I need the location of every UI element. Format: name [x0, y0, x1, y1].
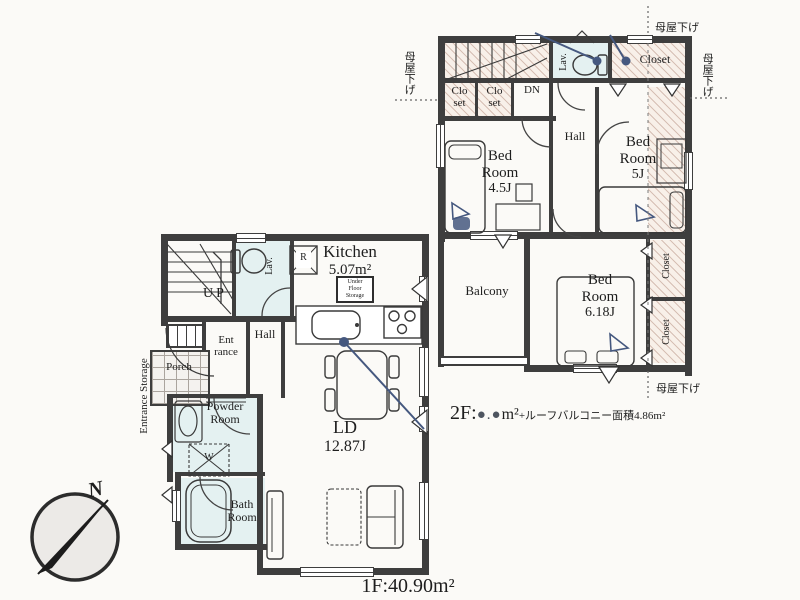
powder-line2: Room: [194, 413, 256, 426]
bed45-line2: Room: [462, 165, 538, 182]
rug-icon: [327, 489, 361, 545]
entrance-line1: Ent: [204, 334, 248, 346]
porch-label: Porch: [152, 361, 206, 373]
floor-plan-page: N Kitchen 5.07m² R Under Floor Storage L…: [0, 0, 800, 600]
ld-area: 12.87J: [305, 438, 385, 456]
bath-room-label: Bath Room: [214, 498, 270, 524]
stove-icon: [384, 307, 421, 338]
lav-2f-label: Lav.: [558, 46, 569, 78]
fridge-label: R: [290, 252, 317, 263]
closet-a-line2: set: [443, 97, 476, 109]
bedroom-5j-label: Bed Room 5J: [608, 134, 668, 182]
bath-line2: Room: [214, 511, 270, 524]
bedroom-618j-label: Bed Room 6.18J: [562, 272, 638, 320]
lav-1f-label: Lav.: [264, 248, 275, 284]
closet-right1-label: Closet: [661, 242, 672, 290]
bed618-area: 6.18J: [562, 305, 638, 320]
sofa-icon: [367, 486, 403, 548]
up-label: UP: [193, 286, 237, 301]
balcony-label: Balcony: [452, 284, 522, 298]
floor2-area-unit: m²: [502, 406, 519, 424]
ufs-line3: Storage: [339, 293, 371, 300]
moya-sage-right: 母屋下げ: [701, 42, 713, 108]
floor2-area-masked-dots: ●.●: [477, 407, 502, 424]
bed45-line1: Bed: [462, 148, 538, 165]
moya-sage-top-right: 母屋下げ: [651, 22, 703, 34]
closet-top-label: Closet: [626, 53, 684, 66]
under-floor-storage-box: Under Floor Storage: [336, 276, 374, 303]
hall-1f-label: Hall: [246, 328, 284, 341]
bed618-line2: Room: [562, 289, 638, 306]
hall-2f-label: Hall: [556, 130, 594, 143]
floor2-area-label: 2F: ●.● m² +ルーフバルコニー面積4.86m²: [450, 402, 665, 425]
closet-b-line2: set: [478, 97, 511, 109]
floor2-area-suffix: +ルーフバルコニー面積4.86m²: [519, 407, 665, 423]
powder-room-label: Powder Room: [194, 400, 256, 426]
toilet-1f-icon: [231, 249, 266, 273]
bed45-area: 4.5J: [462, 181, 538, 196]
dn-label: DN: [516, 84, 548, 96]
ld-name: LD: [305, 418, 385, 438]
bed5-line2: Room: [608, 151, 668, 168]
closet-a-label: Clo set: [443, 85, 476, 109]
entrance-line2: rance: [204, 346, 248, 358]
washer-label: W: [195, 452, 223, 463]
compass-icon: [22, 484, 132, 596]
closet-b-line1: Clo: [478, 85, 511, 97]
bed5-area: 5J: [608, 167, 668, 182]
roof-vent-icon: [570, 31, 594, 43]
stairs-2f-icon: [445, 43, 547, 80]
bedroom-45j-label: Bed Room 4.5J: [462, 148, 538, 196]
floor1-area-label: 1F:40.90m²: [328, 575, 488, 597]
moya-sage-left: 母屋下げ: [403, 42, 415, 104]
entrance-label: Ent rance: [204, 334, 248, 358]
ufs-line1: Under: [339, 279, 371, 286]
closet-b-label: Clo set: [478, 85, 511, 109]
closet-a-line1: Clo: [443, 85, 476, 97]
ufs-line2: Floor: [339, 286, 371, 293]
bed618-line1: Bed: [562, 272, 638, 289]
floor2-area-prefix: 2F:: [450, 402, 477, 425]
moya-sage-bottom-right: 母屋下げ: [652, 383, 704, 395]
bed5-line1: Bed: [608, 134, 668, 151]
closet-right2-label: Closet: [661, 308, 672, 356]
ld-label: LD 12.87J: [305, 418, 385, 455]
entrance-storage-label: Entrance Storage: [138, 340, 150, 452]
stairs-1f-icon: [167, 244, 233, 314]
